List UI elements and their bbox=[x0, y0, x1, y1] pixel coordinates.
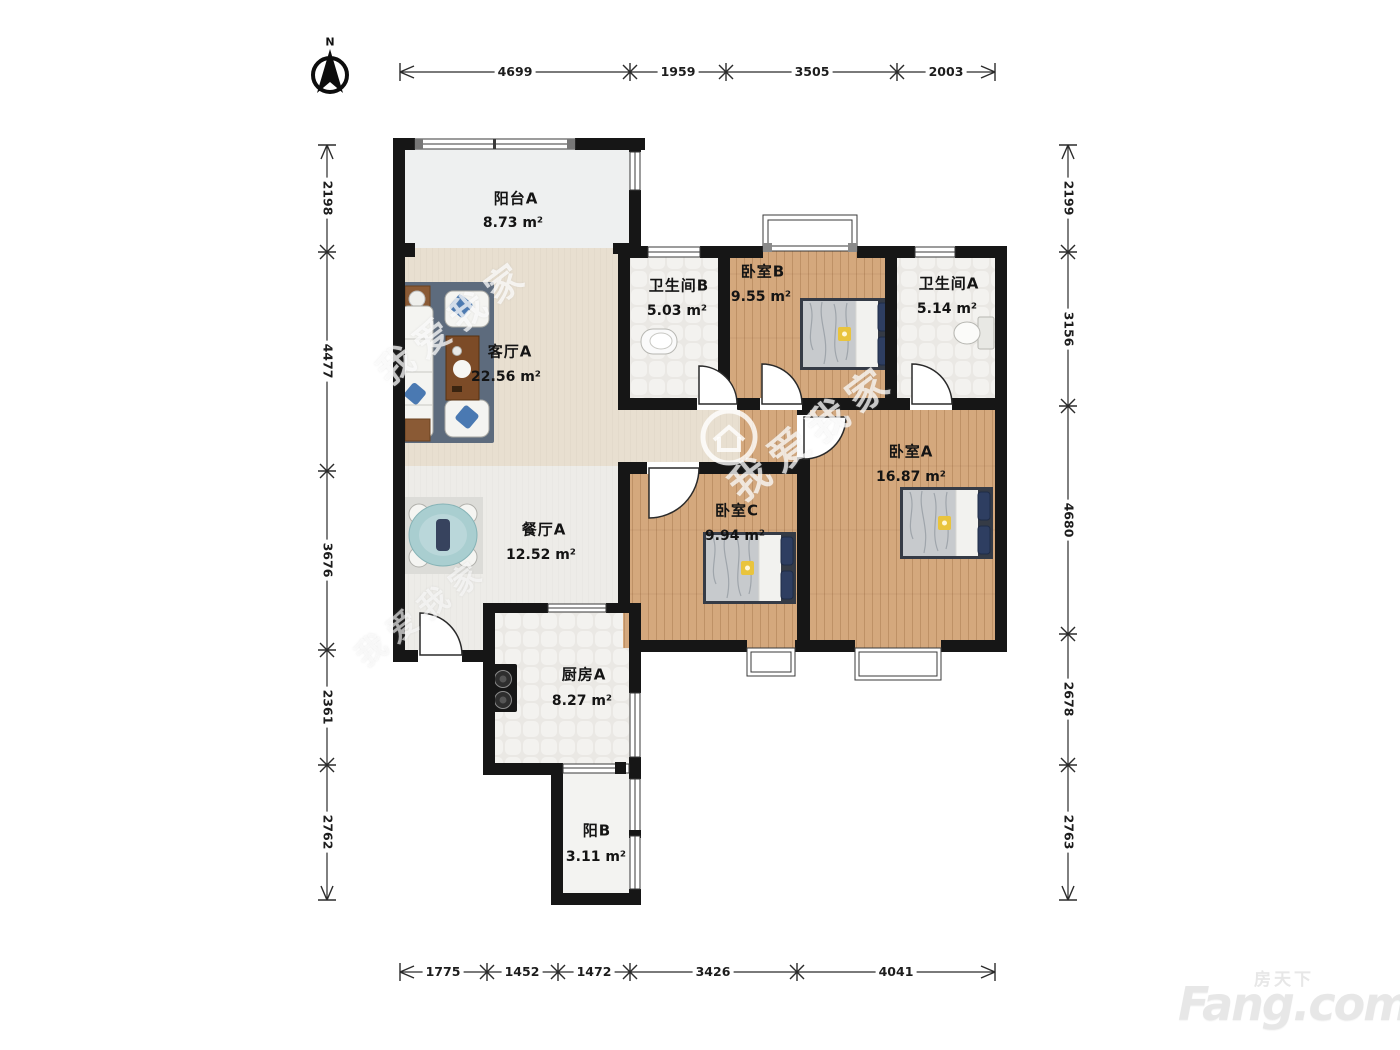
room-area-bath-b: 5.03 m² bbox=[647, 304, 707, 318]
floor-plan-page: N 阳台A 8.73 m² 客厅A 22.56 m² 卫生间B 5.03 m² … bbox=[0, 0, 1400, 1050]
brand-logo-en: Fang.com bbox=[1178, 977, 1400, 1031]
room-area-balcony-b: 3.11 m² bbox=[566, 850, 626, 864]
room-area-living: 22.56 m² bbox=[471, 370, 541, 384]
compass-icon bbox=[313, 49, 347, 93]
room-label-bath-b: 卫生间B bbox=[649, 279, 709, 294]
side-table-2 bbox=[405, 419, 430, 441]
dimension-label: 2198 bbox=[321, 178, 334, 219]
room-area-bath-a: 5.14 m² bbox=[917, 302, 977, 316]
room-label-dining: 餐厅A bbox=[522, 523, 567, 538]
north-label: N bbox=[325, 37, 334, 48]
brand-logo: 房天下 Fang.com bbox=[1178, 963, 1396, 1045]
dimension-label: 4041 bbox=[876, 966, 917, 979]
dimension-label: 3156 bbox=[1062, 309, 1075, 350]
dimension-label: 2361 bbox=[321, 687, 334, 728]
room-label-bed-c: 卧室C bbox=[715, 504, 759, 519]
room-area-bed-a: 16.87 m² bbox=[876, 470, 946, 484]
dimension-label: 3505 bbox=[792, 66, 833, 79]
room-label-bed-b: 卧室B bbox=[741, 265, 785, 280]
bed-a-furniture bbox=[900, 487, 993, 559]
room-label-balcony-a: 阳台A bbox=[494, 192, 539, 207]
room-area-balcony-a: 8.73 m² bbox=[483, 216, 543, 230]
room-area-bed-b: 9.55 m² bbox=[731, 290, 791, 304]
floor-plan-canvas bbox=[0, 0, 1400, 1050]
dimension-label: 4699 bbox=[495, 66, 536, 79]
bed-b-furniture bbox=[800, 298, 893, 370]
dimension-label: 1775 bbox=[423, 966, 464, 979]
hallway-floor bbox=[626, 404, 746, 470]
dimension-label: 1959 bbox=[658, 66, 699, 79]
room-label-bed-a: 卧室A bbox=[889, 445, 934, 460]
dimension-label: 2763 bbox=[1062, 812, 1075, 853]
dimension-label: 2762 bbox=[321, 812, 334, 853]
room-label-bath-a: 卫生间A bbox=[919, 277, 980, 292]
dimension-label: 4680 bbox=[1062, 500, 1075, 541]
dimension-label: 4477 bbox=[321, 341, 334, 382]
dimension-label: 1452 bbox=[502, 966, 543, 979]
room-area-bed-c: 9.94 m² bbox=[705, 529, 765, 543]
room-label-living: 客厅A bbox=[488, 345, 533, 360]
dimension-label: 1472 bbox=[574, 966, 615, 979]
dimension-label: 3426 bbox=[693, 966, 734, 979]
dimension-label: 2003 bbox=[926, 66, 967, 79]
room-label-balcony-b: 阳B bbox=[583, 824, 611, 839]
dimension-label: 3676 bbox=[321, 540, 334, 581]
room-area-kitchen: 8.27 m² bbox=[552, 694, 612, 708]
dimension-label: 2678 bbox=[1062, 679, 1075, 720]
dimension-label: 2199 bbox=[1062, 178, 1075, 219]
room-area-dining: 12.52 m² bbox=[506, 548, 576, 562]
room-label-kitchen: 厨房A bbox=[562, 668, 607, 683]
